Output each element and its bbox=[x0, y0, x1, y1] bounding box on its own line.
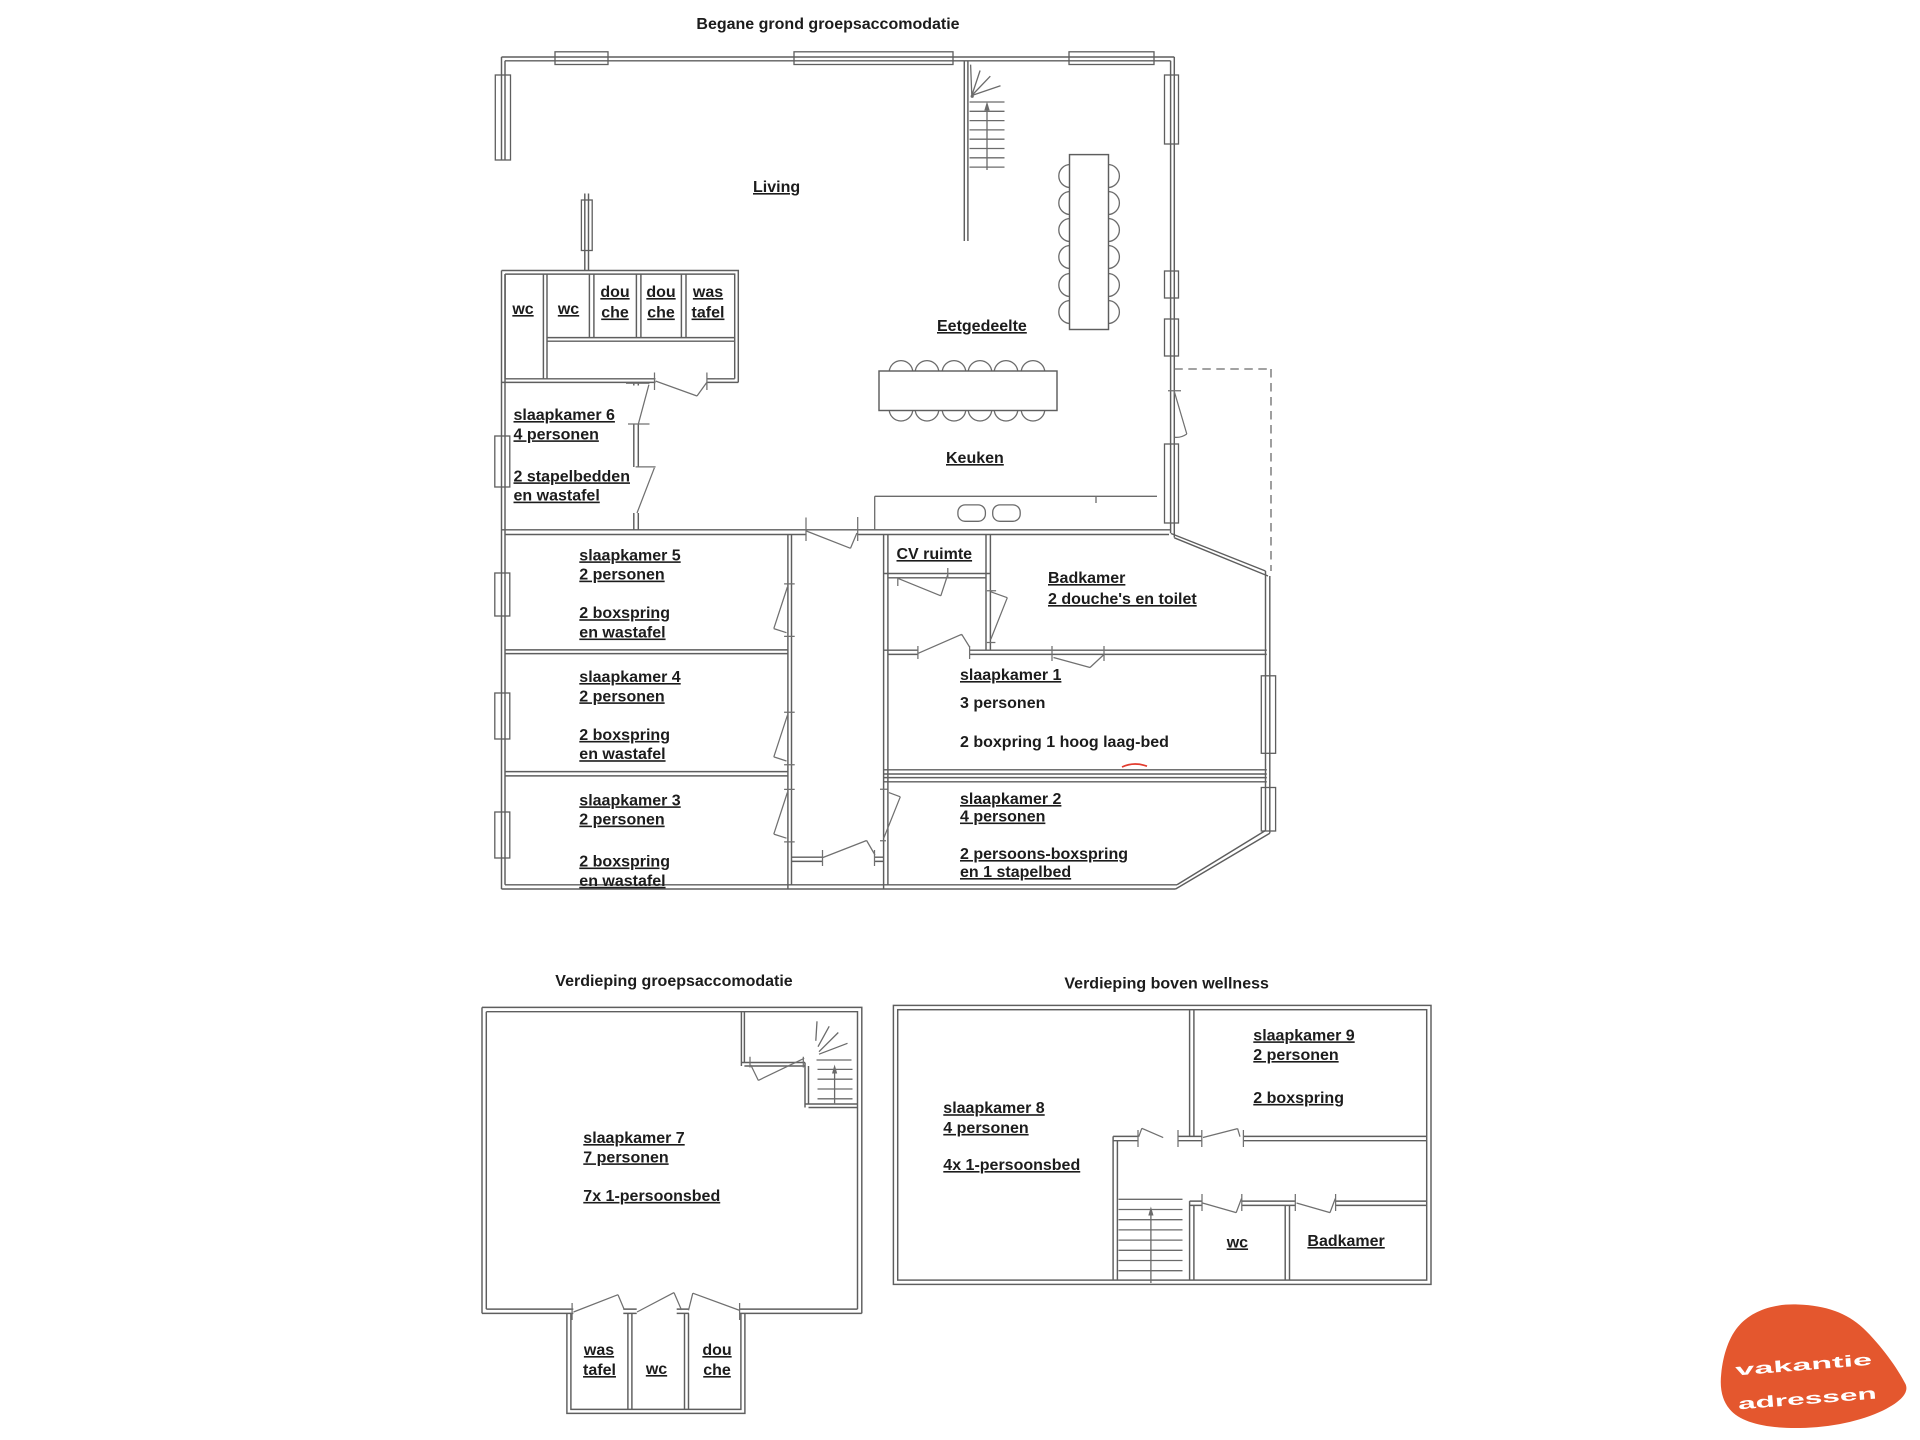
svg-text:tafel: tafel bbox=[692, 305, 725, 322]
svg-text:2 personen: 2 personen bbox=[579, 567, 664, 584]
svg-text:slaapkamer 1: slaapkamer 1 bbox=[960, 667, 1062, 684]
svg-text:2 boxspring: 2 boxspring bbox=[579, 727, 670, 744]
svg-text:slaapkamer 5: slaapkamer 5 bbox=[579, 547, 681, 564]
svg-text:en wastafel: en wastafel bbox=[579, 746, 665, 763]
svg-text:wc: wc bbox=[511, 301, 533, 318]
svg-text:en wastafel: en wastafel bbox=[579, 873, 665, 890]
svg-text:slaapkamer 7: slaapkamer 7 bbox=[583, 1130, 685, 1147]
svg-text:Begane grond groepsaccomodatie: Begane grond groepsaccomodatie bbox=[696, 16, 959, 33]
svg-text:2 personen: 2 personen bbox=[579, 812, 664, 829]
svg-text:dou: dou bbox=[702, 1342, 731, 1359]
svg-text:slaapkamer 3: slaapkamer 3 bbox=[579, 792, 681, 809]
svg-text:Eetgedeelte: Eetgedeelte bbox=[937, 318, 1027, 335]
svg-text:Badkamer: Badkamer bbox=[1048, 570, 1125, 587]
svg-text:Verdieping groepsaccomodatie: Verdieping groepsaccomodatie bbox=[555, 973, 793, 990]
svg-text:2 boxspring: 2 boxspring bbox=[579, 854, 670, 871]
svg-text:4x 1-persoonsbed: 4x 1-persoonsbed bbox=[943, 1157, 1080, 1174]
svg-text:7x 1-persoonsbed: 7x 1-persoonsbed bbox=[583, 1188, 720, 1205]
svg-text:slaapkamer 9: slaapkamer 9 bbox=[1253, 1027, 1355, 1044]
svg-text:Badkamer: Badkamer bbox=[1307, 1233, 1384, 1250]
svg-text:3 personen: 3 personen bbox=[960, 695, 1045, 712]
svg-text:dou: dou bbox=[600, 284, 629, 301]
svg-text:wc: wc bbox=[645, 1361, 667, 1378]
svg-text:che: che bbox=[647, 305, 675, 322]
svg-text:en 1 stapelbed: en 1 stapelbed bbox=[960, 864, 1071, 881]
svg-text:CV ruimte: CV ruimte bbox=[897, 546, 973, 563]
svg-text:4 personen: 4 personen bbox=[514, 426, 599, 443]
svg-text:che: che bbox=[601, 305, 629, 322]
svg-text:4 personen: 4 personen bbox=[960, 809, 1045, 826]
svg-text:2 stapelbedden: 2 stapelbedden bbox=[514, 468, 630, 485]
svg-text:Living: Living bbox=[753, 179, 800, 196]
svg-text:slaapkamer 4: slaapkamer 4 bbox=[579, 669, 681, 686]
svg-text:slaapkamer 6: slaapkamer 6 bbox=[514, 407, 616, 424]
svg-text:was: was bbox=[692, 284, 723, 301]
svg-text:2 boxspring: 2 boxspring bbox=[1253, 1090, 1344, 1107]
svg-text:2 persoons-boxspring: 2 persoons-boxspring bbox=[960, 846, 1128, 863]
svg-text:che: che bbox=[703, 1362, 731, 1379]
svg-text:2 boxpring 1 hoog laag-bed: 2 boxpring 1 hoog laag-bed bbox=[960, 734, 1169, 751]
svg-text:dou: dou bbox=[646, 284, 675, 301]
svg-text:slaapkamer 2: slaapkamer 2 bbox=[960, 791, 1062, 808]
svg-text:2 douche's en toilet: 2 douche's en toilet bbox=[1048, 591, 1197, 608]
svg-text:2 personen: 2 personen bbox=[1253, 1047, 1338, 1064]
svg-text:was: was bbox=[583, 1342, 614, 1359]
svg-text:2 personen: 2 personen bbox=[579, 688, 664, 705]
svg-text:slaapkamer 8: slaapkamer 8 bbox=[943, 1100, 1045, 1117]
svg-text:Keuken: Keuken bbox=[946, 450, 1004, 467]
svg-text:7 personen: 7 personen bbox=[583, 1149, 668, 1166]
svg-text:2 boxspring: 2 boxspring bbox=[579, 605, 670, 622]
svg-text:en wastafel: en wastafel bbox=[514, 488, 600, 505]
svg-text:wc: wc bbox=[1226, 1234, 1248, 1251]
svg-text:tafel: tafel bbox=[583, 1362, 616, 1379]
svg-text:4 personen: 4 personen bbox=[943, 1120, 1028, 1137]
svg-text:wc: wc bbox=[557, 301, 579, 318]
svg-text:en wastafel: en wastafel bbox=[579, 625, 665, 642]
svg-text:Verdieping boven wellness: Verdieping boven wellness bbox=[1064, 975, 1269, 992]
